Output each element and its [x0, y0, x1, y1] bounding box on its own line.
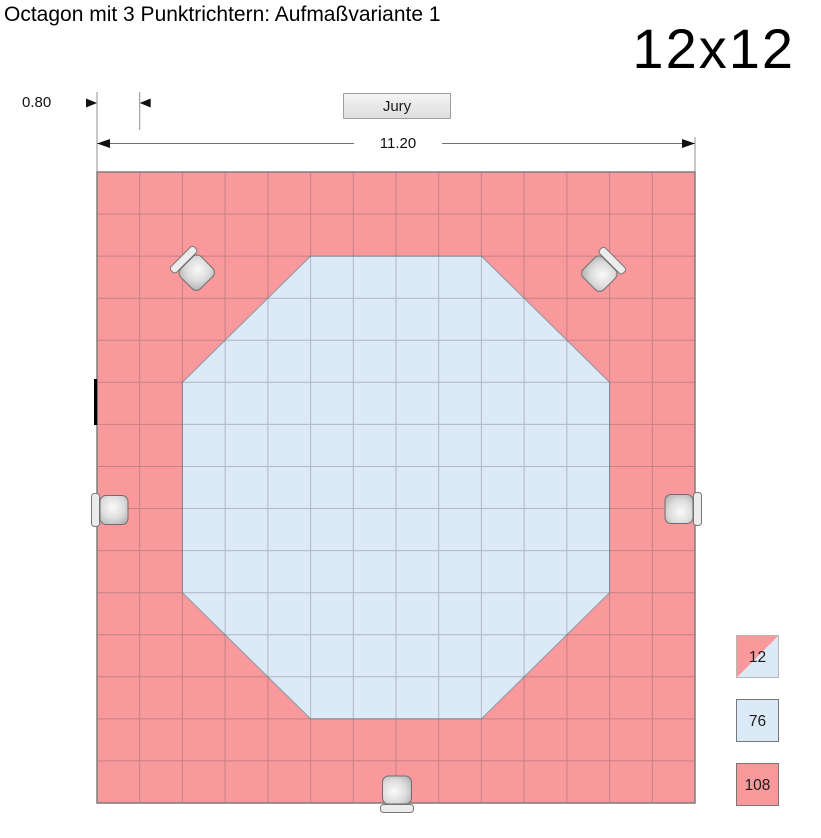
- judge-chair-right-icon: [665, 493, 702, 526]
- canvas: Octagon mit 3 Punktrichtern: Aufmaßvaria…: [0, 0, 821, 838]
- arrow-left-icon: [140, 99, 151, 108]
- judge-chair-bottom-icon: [381, 776, 414, 813]
- dimension-cell-width-label: 0.80: [22, 94, 51, 111]
- arrow-right-icon: [86, 99, 97, 108]
- judge-chair-left-icon: [92, 494, 129, 527]
- mat-plan-drawing: [0, 0, 821, 838]
- arrow-left-icon: [97, 139, 110, 148]
- jury-button[interactable]: Jury: [343, 93, 451, 119]
- left-edge-tick-mark: [94, 379, 97, 425]
- arrow-right-icon: [682, 139, 695, 148]
- legend-swatch-blue-tiles: 76: [736, 699, 779, 742]
- dimension-total-width-label: 11.20: [354, 135, 442, 152]
- legend-swatch-red-tiles: 108: [736, 763, 779, 806]
- legend-swatch-half-tiles: 12: [736, 635, 779, 678]
